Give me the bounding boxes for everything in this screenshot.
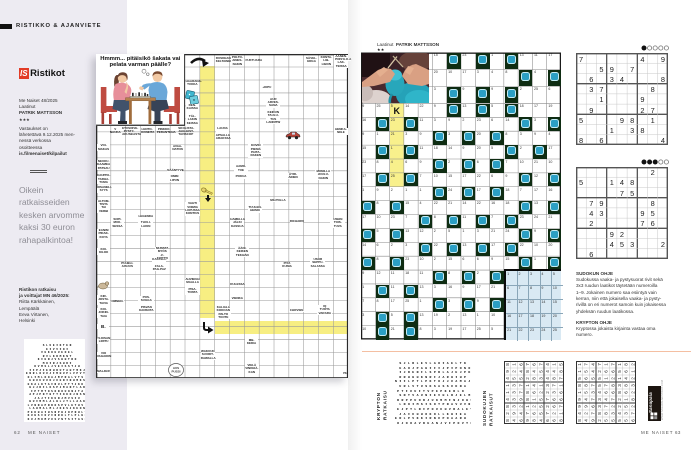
svg-text:7: 7 bbox=[630, 412, 635, 415]
svg-text:5: 5 bbox=[583, 391, 588, 394]
svg-text:2: 2 bbox=[538, 391, 543, 394]
svg-text:8: 8 bbox=[610, 384, 615, 387]
svg-text:9: 9 bbox=[583, 405, 588, 408]
svg-text:5: 5 bbox=[538, 370, 543, 373]
svg-text:2: 2 bbox=[630, 377, 635, 380]
svg-text:6: 6 bbox=[583, 377, 588, 380]
svg-text:6: 6 bbox=[630, 419, 635, 422]
svg-text:8: 8 bbox=[532, 419, 537, 422]
svg-text:7: 7 bbox=[518, 391, 523, 394]
svg-text:5: 5 bbox=[583, 370, 588, 373]
svg-text:2: 2 bbox=[518, 405, 523, 408]
svg-text:7: 7 bbox=[518, 384, 523, 387]
svg-text:7: 7 bbox=[525, 363, 530, 366]
svg-text:9: 9 bbox=[512, 412, 517, 415]
svg-text:2: 2 bbox=[630, 363, 635, 366]
svg-text:7: 7 bbox=[552, 384, 557, 387]
svg-text:1: 1 bbox=[630, 370, 635, 373]
svg-text:8: 8 bbox=[596, 412, 601, 415]
svg-text:7: 7 bbox=[545, 398, 550, 401]
svg-text:2: 2 bbox=[610, 405, 615, 408]
svg-text:2: 2 bbox=[583, 412, 588, 415]
svg-text:3: 3 bbox=[512, 405, 517, 408]
svg-text:4: 4 bbox=[596, 391, 601, 394]
svg-text:6: 6 bbox=[590, 405, 595, 408]
svg-text:5: 5 bbox=[538, 398, 543, 401]
svg-text:8: 8 bbox=[603, 412, 608, 415]
svg-text:8: 8 bbox=[616, 391, 621, 394]
svg-text:2: 2 bbox=[616, 405, 621, 408]
svg-text:5: 5 bbox=[558, 363, 563, 366]
svg-text:3: 3 bbox=[552, 391, 557, 394]
svg-text:7: 7 bbox=[545, 412, 550, 415]
svg-text:1: 1 bbox=[576, 363, 581, 366]
svg-text:4: 4 bbox=[576, 412, 581, 415]
svg-text:6: 6 bbox=[532, 391, 537, 394]
svg-text:5: 5 bbox=[590, 377, 595, 380]
svg-text:2: 2 bbox=[505, 412, 510, 415]
svg-text:3: 3 bbox=[590, 391, 595, 394]
svg-text:6: 6 bbox=[552, 405, 557, 408]
svg-text:2: 2 bbox=[532, 405, 537, 408]
svg-text:9: 9 bbox=[576, 398, 581, 401]
svg-text:5: 5 bbox=[538, 412, 543, 415]
svg-text:6: 6 bbox=[558, 391, 563, 394]
svg-text:4: 4 bbox=[616, 412, 621, 415]
svg-text:6: 6 bbox=[518, 419, 523, 422]
svg-text:3: 3 bbox=[610, 412, 615, 415]
svg-text:4: 4 bbox=[545, 363, 550, 366]
svg-text:3: 3 bbox=[623, 412, 628, 415]
svg-text:3: 3 bbox=[545, 384, 550, 387]
svg-text:4: 4 bbox=[512, 419, 517, 422]
svg-text:9: 9 bbox=[576, 405, 581, 408]
svg-text:4: 4 bbox=[505, 398, 510, 401]
svg-text:1: 1 bbox=[552, 363, 557, 366]
svg-text:1: 1 bbox=[505, 391, 510, 394]
svg-text:5: 5 bbox=[623, 419, 628, 422]
svg-text:5: 5 bbox=[512, 377, 517, 380]
svg-text:8: 8 bbox=[525, 398, 530, 401]
svg-text:8: 8 bbox=[525, 391, 530, 394]
svg-text:4: 4 bbox=[532, 384, 537, 387]
svg-text:6: 6 bbox=[532, 363, 537, 366]
svg-text:1: 1 bbox=[512, 363, 517, 366]
svg-text:7: 7 bbox=[603, 384, 608, 387]
svg-text:4: 4 bbox=[583, 398, 588, 401]
svg-text:7: 7 bbox=[590, 412, 595, 415]
svg-text:5: 5 bbox=[596, 377, 601, 380]
svg-text:8: 8 bbox=[532, 377, 537, 380]
svg-text:3: 3 bbox=[596, 405, 601, 408]
svg-text:6: 6 bbox=[545, 419, 550, 422]
svg-text:2: 2 bbox=[545, 391, 550, 394]
svg-text:4: 4 bbox=[590, 363, 595, 366]
svg-text:1: 1 bbox=[616, 377, 621, 380]
svg-text:3: 3 bbox=[538, 377, 543, 380]
svg-text:8: 8 bbox=[576, 384, 581, 387]
svg-text:4: 4 bbox=[583, 419, 588, 422]
svg-text:8: 8 bbox=[583, 384, 588, 387]
svg-text:7: 7 bbox=[583, 363, 588, 366]
svg-text:6: 6 bbox=[623, 370, 628, 373]
svg-text:5: 5 bbox=[616, 370, 621, 373]
svg-text:4: 4 bbox=[545, 370, 550, 373]
svg-text:2: 2 bbox=[630, 391, 635, 394]
svg-text:7: 7 bbox=[558, 405, 563, 408]
svg-text:8: 8 bbox=[576, 419, 581, 422]
svg-text:7: 7 bbox=[590, 398, 595, 401]
svg-text:6: 6 bbox=[552, 419, 557, 422]
svg-text:3: 3 bbox=[512, 384, 517, 387]
svg-text:2: 2 bbox=[596, 419, 601, 422]
svg-text:8: 8 bbox=[630, 398, 635, 401]
svg-text:4: 4 bbox=[623, 377, 628, 380]
svg-text:2: 2 bbox=[596, 370, 601, 373]
svg-text:2: 2 bbox=[610, 377, 615, 380]
svg-text:4: 4 bbox=[532, 370, 537, 373]
svg-text:7: 7 bbox=[525, 412, 530, 415]
svg-text:5: 5 bbox=[538, 405, 543, 408]
svg-text:8: 8 bbox=[558, 419, 563, 422]
svg-text:2: 2 bbox=[545, 405, 550, 408]
svg-text:9: 9 bbox=[525, 419, 530, 422]
svg-text:1: 1 bbox=[576, 391, 581, 394]
svg-text:6: 6 bbox=[518, 363, 523, 366]
svg-text:5: 5 bbox=[616, 419, 621, 422]
svg-text:1: 1 bbox=[623, 398, 628, 401]
svg-text:5: 5 bbox=[518, 377, 523, 380]
svg-text:5: 5 bbox=[603, 419, 608, 422]
svg-text:1: 1 bbox=[525, 384, 530, 387]
svg-text:1: 1 bbox=[576, 370, 581, 373]
svg-text:3: 3 bbox=[512, 391, 517, 394]
svg-text:4: 4 bbox=[538, 419, 543, 422]
svg-text:7: 7 bbox=[603, 405, 608, 408]
svg-text:6: 6 bbox=[532, 412, 537, 415]
svg-text:5: 5 bbox=[623, 405, 628, 408]
svg-text:5: 5 bbox=[610, 419, 615, 422]
svg-text:2: 2 bbox=[525, 377, 530, 380]
svg-text:3: 3 bbox=[616, 384, 621, 387]
svg-text:2: 2 bbox=[616, 398, 621, 401]
svg-text:2: 2 bbox=[630, 405, 635, 408]
svg-text:7: 7 bbox=[590, 384, 595, 387]
svg-text:1: 1 bbox=[603, 363, 608, 366]
svg-text:7: 7 bbox=[538, 363, 543, 366]
svg-text:1: 1 bbox=[558, 412, 563, 415]
svg-text:8: 8 bbox=[623, 363, 628, 366]
svg-text:8: 8 bbox=[552, 377, 557, 380]
svg-text:7: 7 bbox=[610, 363, 615, 366]
svg-text:PUSSI: PUSSI bbox=[172, 369, 181, 373]
svg-text:1: 1 bbox=[616, 363, 621, 366]
svg-text:7: 7 bbox=[558, 377, 563, 380]
svg-text:6: 6 bbox=[552, 398, 557, 401]
svg-text:1: 1 bbox=[525, 405, 530, 408]
svg-text:8: 8 bbox=[623, 384, 628, 387]
svg-text:1: 1 bbox=[532, 398, 537, 401]
svg-text:4: 4 bbox=[545, 377, 550, 380]
svg-text:6: 6 bbox=[610, 391, 615, 394]
svg-text:5: 5 bbox=[596, 384, 601, 387]
svg-text:9: 9 bbox=[505, 370, 510, 373]
svg-text:1: 1 bbox=[538, 384, 543, 387]
svg-text:8: 8 bbox=[558, 370, 563, 373]
svg-text:8: 8 bbox=[505, 363, 510, 366]
svg-text:2: 2 bbox=[512, 370, 517, 373]
svg-text:7: 7 bbox=[596, 363, 601, 366]
svg-text:4: 4 bbox=[518, 370, 523, 373]
svg-text:4: 4 bbox=[518, 412, 523, 415]
svg-text:3: 3 bbox=[512, 398, 517, 401]
svg-text:4: 4 bbox=[590, 370, 595, 373]
svg-text:8: 8 bbox=[505, 405, 510, 408]
svg-text:1: 1 bbox=[505, 384, 510, 387]
svg-text:4: 4 bbox=[505, 377, 510, 380]
svg-text:3: 3 bbox=[596, 398, 601, 401]
svg-text:9: 9 bbox=[590, 419, 595, 422]
svg-text:6: 6 bbox=[623, 391, 628, 394]
svg-text:1: 1 bbox=[558, 384, 563, 387]
svg-text:4: 4 bbox=[552, 370, 557, 373]
svg-text:9: 9 bbox=[518, 398, 523, 401]
svg-text:6: 6 bbox=[603, 370, 608, 373]
svg-text:6: 6 bbox=[603, 391, 608, 394]
svg-text:8: 8 bbox=[525, 370, 530, 373]
svg-text:7: 7 bbox=[610, 398, 615, 401]
svg-text:8: 8 bbox=[505, 419, 510, 422]
svg-text:5: 5 bbox=[576, 377, 581, 380]
svg-text:6: 6 bbox=[558, 398, 563, 401]
svg-text:6: 6 bbox=[610, 370, 615, 373]
svg-text:2: 2 bbox=[552, 412, 557, 415]
svg-text:3: 3 bbox=[630, 384, 635, 387]
svg-text:4: 4 bbox=[603, 398, 608, 401]
svg-text:1: 1 bbox=[603, 377, 608, 380]
